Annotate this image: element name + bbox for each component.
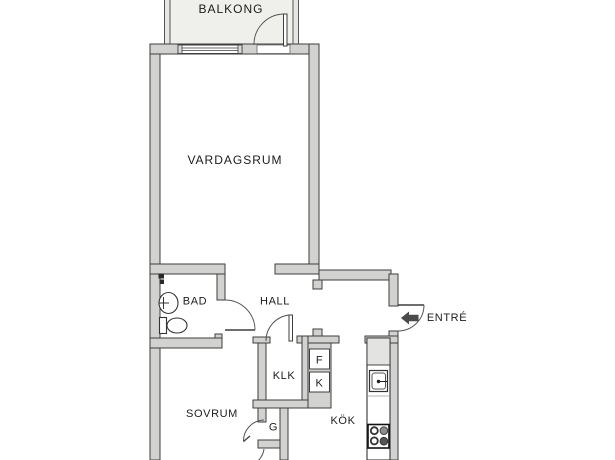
hall-kitchen-wall-stub-bottom	[313, 329, 322, 336]
toilet-icon	[160, 318, 188, 334]
kitchen-label: KÖK	[330, 415, 355, 427]
klk-label: KLK	[273, 370, 296, 382]
balcony-window	[178, 45, 242, 54]
kitchen-sink-icon	[370, 371, 388, 392]
burner	[380, 437, 388, 445]
closet-bottom-wall	[258, 440, 280, 448]
bedroom-door	[248, 449, 264, 460]
klk-right-wall	[302, 336, 308, 408]
klk-left-wall	[258, 343, 266, 403]
hall-top-wall-right	[319, 270, 391, 280]
balcony: BALKONG	[165, 0, 299, 44]
walls	[150, 44, 398, 460]
burner	[371, 427, 378, 434]
closet-right-wall	[280, 408, 288, 460]
entrance-door	[398, 305, 424, 331]
fridge-label: F	[316, 355, 323, 367]
entrance-label: ENTRÉ	[427, 311, 467, 324]
balcony-right-wall	[293, 0, 299, 44]
window-end-cap-right	[238, 45, 242, 54]
klk-top-cap	[253, 337, 270, 343]
freezer-label: K	[316, 378, 324, 390]
entry-arrow-icon	[401, 312, 419, 325]
hall-kitchen-wall-stub-top	[313, 280, 322, 289]
balcony-left-wall	[165, 0, 171, 44]
bathroom-top-wall	[150, 264, 225, 274]
window-end-cap-left	[178, 45, 182, 54]
bathroom-door-swing-arc	[225, 300, 255, 330]
bedroom-door-swing-arc	[248, 449, 264, 460]
bathroom-right-wall	[217, 274, 225, 300]
bathroom-door	[225, 300, 255, 330]
stove-icon	[368, 425, 389, 449]
closet-door-leaf	[244, 436, 251, 442]
floor-plan-drawing: BALKONG	[0, 0, 615, 460]
balcony-label: BALKONG	[198, 2, 263, 16]
burner	[380, 427, 388, 435]
klk-door-leaf	[289, 315, 293, 341]
balcony-door-leaf	[284, 14, 288, 46]
wall-fixture-icon	[159, 274, 165, 279]
wall-fixture-icon	[160, 280, 165, 285]
bedroom-top-wall	[150, 338, 222, 348]
hall-label: HALL	[260, 296, 290, 308]
floor-plan: BALKONG	[0, 0, 615, 460]
livingroom-label: VARDAGSRUM	[187, 153, 282, 167]
hall-top-wall-left	[275, 264, 319, 274]
closet-label: G	[269, 422, 278, 434]
burner	[371, 437, 378, 444]
livingroom-right-wall	[309, 44, 319, 266]
outer-left-wall	[150, 44, 160, 460]
klk-bottom-wall	[253, 400, 308, 408]
bathroom-label: BAD	[183, 296, 207, 308]
kitchen-counter	[367, 338, 390, 460]
right-wall-upper	[389, 274, 398, 306]
counter-cabinet	[367, 338, 390, 365]
closet-door	[243, 420, 264, 442]
bedroom-label: SOVRUM	[186, 408, 238, 420]
sink-icon	[159, 293, 178, 314]
